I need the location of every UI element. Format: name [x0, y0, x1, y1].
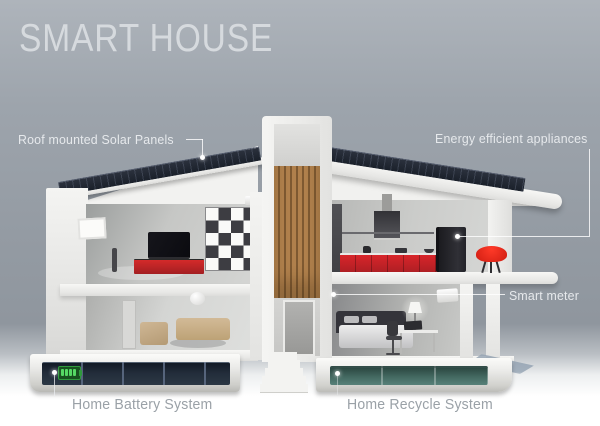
- appliances-marker-dot: [455, 234, 460, 239]
- ac-unit-bedroom: [437, 288, 459, 302]
- red-chair-leg: [490, 261, 492, 273]
- appliances-connector-h: [459, 236, 590, 237]
- lounge-door: [122, 300, 136, 349]
- support-wall-inner: [460, 284, 473, 358]
- office-chair-base: [392, 340, 394, 354]
- callout-home-battery: Home Battery System: [72, 397, 212, 413]
- pendant-lamp: [190, 292, 205, 305]
- support-wall-outer: [486, 284, 500, 360]
- office-chair-feet: [386, 353, 400, 355]
- battery-bar: [69, 369, 72, 376]
- desk-leg: [433, 333, 435, 352]
- red-designer-chair: [476, 246, 507, 262]
- battery-marker-dot: [52, 370, 57, 375]
- hood-duct: [382, 194, 392, 212]
- wood-slat-screen: [274, 166, 320, 298]
- solar-connector-h: [186, 139, 203, 140]
- armchair-box: [140, 322, 168, 345]
- left-gable-wall: [46, 188, 88, 360]
- page-title: SMART HOUSE: [19, 17, 273, 61]
- callout-solar-panels: Roof mounted Solar Panels: [18, 132, 174, 147]
- battery-bar: [65, 369, 68, 376]
- balcony-floor-slab: [322, 272, 558, 284]
- fridge: [436, 227, 466, 272]
- smart-meter-marker-dot: [331, 292, 336, 297]
- tv-screen: [148, 232, 190, 259]
- solar-marker-dot: [200, 155, 205, 160]
- battery-connector-v: [54, 374, 55, 396]
- kettle-icon: [363, 246, 371, 253]
- callout-appliances: Energy efficient appliances: [435, 131, 588, 146]
- mid-floor-slab-left: [60, 284, 260, 296]
- smart-house-infographic: SMART HOUSE Roof mounted Solar Panels En…: [0, 0, 600, 426]
- tower-upper-recess: [274, 124, 320, 168]
- kitchen-shelf-rail: [342, 232, 434, 234]
- range-hood: [374, 211, 400, 240]
- bed-pillow: [344, 316, 359, 323]
- checkered-shelf-unit: [206, 208, 256, 270]
- step: [260, 384, 308, 393]
- appliances-connector-v: [589, 149, 590, 236]
- smart-meter-connector-h: [334, 294, 505, 295]
- office-chair-seat: [386, 336, 402, 340]
- home-recycle-strip: [330, 366, 488, 385]
- callout-home-recycle: Home Recycle System: [347, 397, 493, 413]
- living-room-window: [77, 217, 106, 239]
- entrance-door: [283, 300, 315, 356]
- bed-pillow: [362, 316, 377, 323]
- media-console-red: [134, 259, 204, 274]
- desk-top: [398, 330, 438, 333]
- sofa: [176, 318, 230, 340]
- office-chair-back: [387, 321, 398, 336]
- entrance-steps: [260, 352, 308, 392]
- decor-vase: [112, 248, 117, 272]
- battery-charge-icon: [58, 366, 81, 380]
- recycle-marker-dot: [335, 371, 340, 376]
- battery-bar: [61, 369, 64, 376]
- recycle-connector-v: [337, 375, 338, 395]
- battery-tip: [79, 370, 82, 376]
- callout-smart-meter: Smart meter: [509, 288, 579, 303]
- battery-bar: [73, 369, 76, 376]
